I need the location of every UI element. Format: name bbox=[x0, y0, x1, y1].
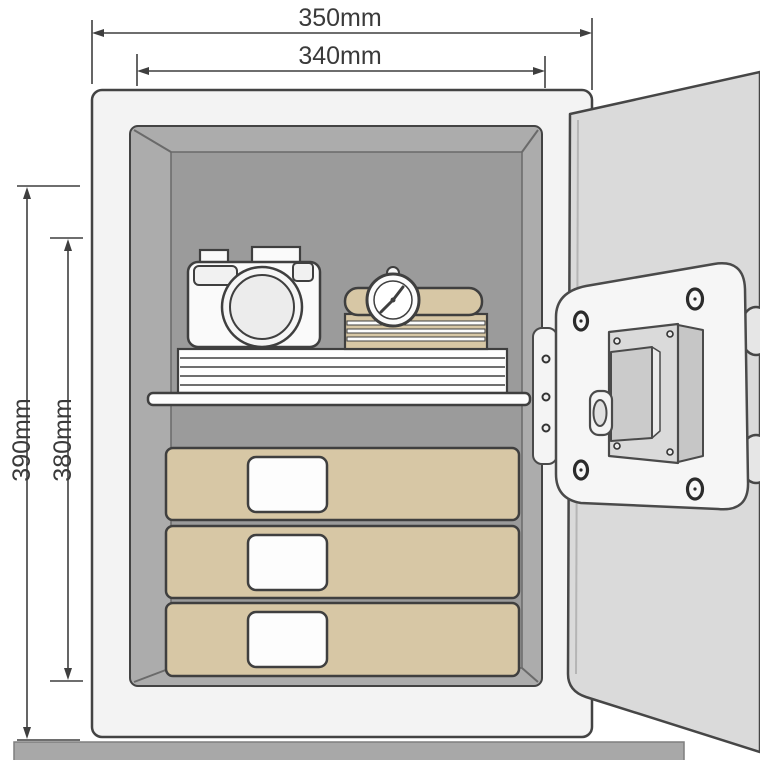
floor-bar bbox=[14, 742, 684, 760]
keypad-screw bbox=[614, 338, 620, 344]
arrowhead-top bbox=[64, 239, 72, 251]
box-label bbox=[248, 457, 327, 512]
box-body bbox=[166, 448, 519, 520]
watch-center-dot bbox=[391, 298, 396, 303]
hinge-screw bbox=[543, 394, 550, 401]
keypad-screw bbox=[667, 331, 673, 337]
arrowhead-left bbox=[137, 67, 149, 75]
storage-box-1 bbox=[166, 448, 519, 520]
book-stack bbox=[345, 314, 487, 349]
lock-handle bbox=[590, 391, 612, 435]
safe-dimension-diagram: 350mm 340mm 390mm 380mm bbox=[0, 0, 760, 760]
keypad-pad bbox=[611, 347, 652, 441]
hinge-strip bbox=[533, 328, 557, 464]
keypad-screw bbox=[667, 449, 673, 455]
storage-box-2 bbox=[166, 526, 519, 598]
storage-box-3 bbox=[166, 603, 519, 676]
camera-lens-inner bbox=[230, 275, 294, 339]
plate-screw-top-left bbox=[575, 312, 588, 330]
hinge-screw bbox=[543, 356, 550, 363]
arrowhead-bottom bbox=[23, 727, 31, 739]
box-body bbox=[166, 526, 519, 598]
storage-boxes bbox=[166, 448, 519, 676]
plate-screw-bottom-right bbox=[688, 479, 703, 499]
keypad-side-face bbox=[678, 325, 703, 462]
paper-stack bbox=[178, 349, 507, 393]
lock-plate bbox=[556, 263, 748, 509]
handle-slot bbox=[594, 400, 607, 426]
plate-screw-top-right bbox=[688, 289, 703, 309]
box-label bbox=[248, 535, 327, 590]
label-outer-height: 390mm bbox=[8, 398, 36, 481]
label-inner-height: 380mm bbox=[49, 398, 77, 481]
box-body bbox=[166, 603, 519, 676]
book-stripe bbox=[347, 337, 485, 341]
arrowhead-left bbox=[92, 29, 104, 37]
camera bbox=[188, 247, 320, 347]
camera-flash bbox=[293, 263, 313, 281]
document-stack bbox=[178, 349, 507, 393]
keypad-pad-bevel bbox=[652, 347, 660, 438]
label-inner-width: 340mm bbox=[298, 42, 381, 70]
keypad-module bbox=[609, 324, 703, 463]
plate-screw-bottom-left bbox=[575, 461, 588, 479]
hinge-screw bbox=[543, 425, 550, 432]
arrowhead-right bbox=[533, 67, 545, 75]
arrowhead-bottom bbox=[64, 668, 72, 680]
arrowhead-top bbox=[23, 187, 31, 199]
book-stripe bbox=[347, 329, 485, 333]
keypad-screw bbox=[614, 443, 620, 449]
box-label bbox=[248, 612, 327, 667]
book-stripe bbox=[347, 321, 485, 325]
label-outer-width: 350mm bbox=[298, 4, 381, 32]
arrowhead-right bbox=[580, 29, 592, 37]
shelf bbox=[148, 393, 530, 405]
camera-bump-large bbox=[252, 247, 300, 263]
